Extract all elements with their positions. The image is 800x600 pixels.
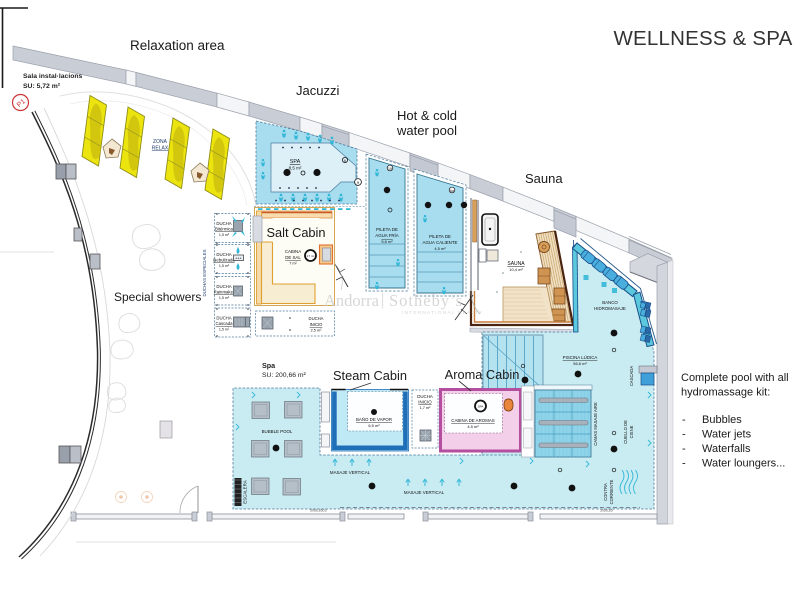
svg-text:SPA: SPA	[478, 405, 484, 409]
svg-text:CABINA: CABINA	[285, 249, 301, 254]
svg-text:3066,85: 3066,85	[600, 509, 613, 513]
svg-text:DUCHA: DUCHA	[216, 284, 231, 289]
svg-text:Bubbles: Bubbles	[702, 414, 742, 426]
svg-text:1,5 m²: 1,5 m²	[219, 328, 230, 332]
svg-text:-: -	[682, 414, 686, 426]
svg-text:DUCHA: DUCHA	[216, 221, 231, 226]
svg-text:+++: +++	[235, 256, 243, 261]
svg-text:INICIO: INICIO	[310, 322, 324, 327]
svg-text:-: -	[682, 429, 686, 441]
svg-text:Salt Cabin: Salt Cabin	[266, 225, 325, 240]
svg-text:Spa: Spa	[262, 361, 276, 370]
svg-text:INICIO: INICIO	[418, 400, 432, 405]
svg-text:Rainmaker: Rainmaker	[214, 289, 235, 294]
svg-text:-: -	[682, 443, 686, 455]
svg-text:AGUA CALIENTE: AGUA CALIENTE	[423, 240, 458, 245]
svg-text:Sotheby’s: Sotheby’s	[389, 291, 463, 310]
svg-text:SPA: SPA	[290, 159, 301, 165]
svg-text:Waterfalls: Waterfalls	[702, 443, 751, 455]
svg-text:1,5 m²: 1,5 m²	[219, 264, 230, 268]
svg-text:Cascada: Cascada	[216, 321, 234, 326]
svg-text:BAÑO DE VAPOR: BAÑO DE VAPOR	[356, 417, 392, 422]
svg-text:BANCO: BANCO	[602, 300, 618, 305]
svg-text:Andorra: Andorra	[324, 291, 380, 310]
svg-text:AGUA FRÍA: AGUA FRÍA	[375, 233, 398, 238]
svg-text:MASAJE VERTICAL: MASAJE VERTICAL	[330, 470, 371, 475]
svg-text:BUBBLE POOL: BUBBLE POOL	[262, 429, 293, 434]
svg-text:19: 19	[388, 167, 392, 171]
svg-text:DUCHA: DUCHA	[417, 394, 433, 399]
svg-text:56,6 m²: 56,6 m²	[573, 361, 587, 366]
svg-text:8,5 m²: 8,5 m²	[289, 166, 302, 171]
svg-text:5,6 m²: 5,6 m²	[381, 239, 393, 244]
svg-text:1,5 m²: 1,5 m²	[219, 296, 230, 300]
svg-text:|: |	[381, 290, 384, 309]
svg-text:PILETA DE: PILETA DE	[429, 234, 451, 239]
svg-text:Hot & cold: Hot & cold	[397, 108, 457, 123]
svg-text:Nebulizada: Nebulizada	[213, 258, 235, 263]
svg-text:6,5 m²: 6,5 m²	[368, 423, 380, 428]
svg-text:CUELLO DE: CUELLO DE	[623, 420, 628, 444]
svg-text:1,7 m²: 1,7 m²	[420, 406, 431, 410]
svg-text:CORRIENTE: CORRIENTE	[609, 479, 614, 504]
svg-text:-: -	[682, 458, 686, 470]
svg-text:Special showers: Special showers	[114, 290, 201, 304]
svg-text:Jacuzzi: Jacuzzi	[296, 83, 339, 98]
svg-text:4,5 m²: 4,5 m²	[467, 424, 479, 429]
svg-text:RELAX: RELAX	[152, 146, 169, 152]
svg-text:Bitérmica: Bitérmica	[215, 227, 234, 232]
svg-text:MASAJE VERTICAL: MASAJE VERTICAL	[404, 490, 445, 495]
svg-text:PILETA DE: PILETA DE	[376, 227, 398, 232]
svg-text:1,5 m²: 1,5 m²	[219, 233, 230, 237]
svg-text:water pool: water pool	[396, 123, 457, 138]
svg-text:4,5 m²: 4,5 m²	[434, 246, 446, 251]
svg-text:10,4 m²: 10,4 m²	[509, 267, 523, 272]
svg-text:Water jets: Water jets	[702, 429, 752, 441]
svg-text:CONTRA: CONTRA	[603, 483, 608, 501]
svg-text:5066,8503: 5066,8503	[310, 509, 327, 513]
svg-text:SU: 5,72 m²: SU: 5,72 m²	[23, 83, 61, 90]
svg-text:Sauna: Sauna	[525, 171, 563, 186]
svg-text:DUCHA: DUCHA	[216, 316, 231, 321]
svg-text:Complete pool with all: Complete pool with all	[681, 372, 789, 384]
svg-text:WELLNESS & SPA: WELLNESS & SPA	[613, 27, 792, 50]
svg-text:HIDROMASAJE: HIDROMASAJE	[594, 306, 626, 311]
svg-text:ZONA: ZONA	[153, 139, 168, 145]
svg-text:hydromassage kit:: hydromassage kit:	[681, 387, 770, 399]
svg-text:Water loungers...: Water loungers...	[702, 458, 785, 470]
svg-text:CASCADA: CASCADA	[629, 366, 634, 386]
svg-text:INTERNATIONAL REALTY: INTERNATIONAL REALTY	[402, 310, 483, 316]
svg-text:6a: 6a	[450, 189, 454, 193]
svg-text:17 m²: 17 m²	[307, 254, 315, 258]
svg-text:7 m²: 7 m²	[289, 262, 297, 266]
svg-text:DUCHAS ESPECIALES: DUCHAS ESPECIALES	[202, 249, 207, 296]
svg-text:DE SAL: DE SAL	[285, 255, 301, 260]
svg-text:Sala instal·lacions: Sala instal·lacions	[23, 73, 83, 80]
svg-text:Aroma Cabin: Aroma Cabin	[445, 367, 520, 382]
svg-text:CABINA DE AROMAS: CABINA DE AROMAS	[451, 418, 495, 423]
svg-text:DUCHA: DUCHA	[309, 316, 324, 321]
svg-text:ESCALERA: ESCALERA	[243, 480, 248, 503]
svg-text:Steam Cabin: Steam Cabin	[333, 368, 407, 383]
svg-text:CAMAS MASAJE AIRE: CAMAS MASAJE AIRE	[593, 402, 598, 446]
svg-text:6: 6	[344, 159, 346, 163]
svg-text:Relaxation area: Relaxation area	[130, 38, 225, 53]
svg-text:SU: 200,66 m²: SU: 200,66 m²	[262, 372, 307, 379]
svg-text:CISNE: CISNE	[629, 425, 634, 438]
svg-text:2,5 m²: 2,5 m²	[311, 329, 322, 333]
svg-text:DUCHA: DUCHA	[216, 252, 231, 257]
svg-text:PISCINA LÚDICA: PISCINA LÚDICA	[563, 355, 598, 360]
